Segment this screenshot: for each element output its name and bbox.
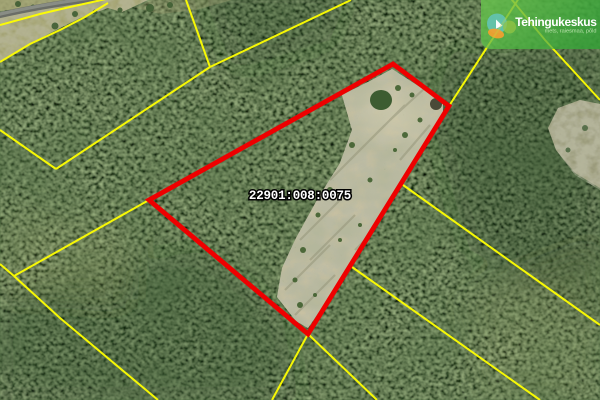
- svg-text:22901:008:0075: 22901:008:0075: [249, 189, 351, 203]
- svg-text:mets, raiesmaa, põld: mets, raiesmaa, põld: [545, 29, 597, 35]
- svg-text:Tehingukeskus: Tehingukeskus: [515, 15, 597, 29]
